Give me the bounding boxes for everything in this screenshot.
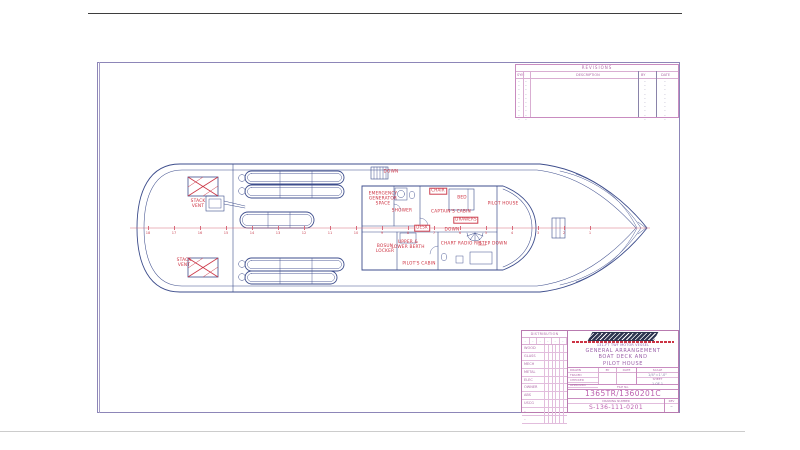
rev-cell: REV –	[665, 399, 678, 412]
frame-number-8: 8	[407, 231, 409, 235]
label-down-aft-stair: DOWN	[384, 171, 399, 176]
distribution-row-label: WOOD	[522, 345, 544, 352]
distribution-row: OWNER	[522, 384, 567, 392]
plan-label-layer: DOWNEMERGENCY GENERATOR SPACESHOWERCHAIR…	[0, 0, 800, 450]
drawing-number-value: S-136-111-0201	[568, 404, 664, 412]
distribution-row-label: –	[522, 408, 544, 415]
revisions-empty-rows: ––––––––––––––––––––––––––––––––––––––––	[516, 79, 678, 121]
distribution-title: DISTRIBUTION	[522, 331, 567, 338]
frame-tick	[200, 226, 201, 230]
distribution-symbol-row: ––––––	[522, 338, 567, 345]
frame-number-5: 5	[485, 231, 487, 235]
frame-tick	[590, 226, 591, 230]
distribution-cell	[563, 361, 567, 368]
distribution-cell	[563, 416, 567, 423]
frame-tick	[304, 226, 305, 230]
frame-tick	[486, 226, 487, 230]
distribution-row: USCG	[522, 400, 567, 408]
distribution-cell	[563, 353, 567, 360]
frame-tick	[226, 226, 227, 230]
scanned-drawing-sheet: DOWNEMERGENCY GENERATOR SPACESHOWERCHAIR…	[0, 0, 800, 450]
frame-number-13: 13	[276, 231, 281, 235]
file-number-value: 1365TR/1360201C	[568, 389, 678, 399]
revisions-row-dash: –	[525, 117, 527, 121]
frame-number-14: 14	[250, 231, 255, 235]
distribution-row-label: GLASS	[522, 353, 544, 360]
distribution-cell	[563, 392, 567, 399]
label-drawers: DRAWERS	[453, 217, 478, 224]
label-down-spiral-stair: DOWN	[445, 229, 460, 234]
revisions-col-date: DATE	[661, 72, 670, 78]
label-pilot-house: PILOT HOUSE	[488, 203, 519, 208]
distribution-row: METAL	[522, 369, 567, 377]
frame-number-15: 15	[224, 231, 229, 235]
frame-tick	[330, 226, 331, 230]
distribution-row: ABS	[522, 392, 567, 400]
builder-logo	[568, 331, 678, 341]
label-bed: BED	[457, 197, 467, 202]
frame-tick	[278, 226, 279, 230]
frame-number-7: 7	[433, 231, 435, 235]
distribution-row-label: USCG	[522, 400, 544, 407]
revisions-header-row: SYM DESCRIPTION BY DATE	[516, 72, 678, 79]
distribution-row: MECH	[522, 361, 567, 369]
title-block: DISTRIBUTION –––––– WOODGLASSMECHMETALEL…	[521, 330, 679, 413]
label-pilots-cabin: PILOT'S CABIN	[402, 263, 435, 268]
frame-number-17: 17	[172, 231, 177, 235]
revisions-col-description: DESCRIPTION	[576, 72, 600, 78]
frame-number-10: 10	[354, 231, 359, 235]
frame-number-3: 3	[537, 231, 539, 235]
revisions-row-dash: –	[518, 117, 520, 121]
distribution-row-label: ELEC	[522, 377, 544, 384]
distribution-row-label: METAL	[522, 369, 544, 376]
frame-tick	[252, 226, 253, 230]
frame-tick	[564, 226, 565, 230]
frame-tick	[174, 226, 175, 230]
distribution-row: –	[522, 408, 567, 416]
frame-number-9: 9	[381, 231, 383, 235]
distribution-row: –	[522, 416, 567, 424]
frame-number-2: 2	[563, 231, 565, 235]
label-step-down: STEP DOWN	[479, 243, 507, 248]
label-emergency-generator-space: EMERGENCY GENERATOR SPACE	[369, 193, 398, 208]
label-upper-lower-berth: UPPER & LOWER BERTH	[391, 241, 424, 251]
label-shower: SHOWER	[392, 210, 413, 215]
frame-tick	[408, 226, 409, 230]
drawing-number-box: DRAWING NUMBER S-136-111-0201	[568, 399, 665, 412]
distribution-cell	[563, 408, 567, 415]
frame-number-12: 12	[302, 231, 307, 235]
distribution-row-label: MECH	[522, 361, 544, 368]
frame-number-11: 11	[328, 231, 333, 235]
frame-number-4: 4	[511, 231, 513, 235]
distribution-row: ELEC	[522, 377, 567, 385]
distribution-row: WOOD	[522, 345, 567, 353]
revisions-row-dash: –	[644, 117, 646, 121]
distribution-row-label: ABS	[522, 392, 544, 399]
distribution-cell	[563, 369, 567, 376]
label-chair: CHAIR	[429, 188, 447, 195]
revisions-table: REVISIONS SYM DESCRIPTION BY DATE ––––––…	[515, 64, 679, 118]
frame-number-18: 18	[146, 231, 151, 235]
revisions-row: ––––	[516, 117, 678, 121]
frame-tick	[382, 226, 383, 230]
rev-value: –	[665, 404, 678, 411]
revisions-col-by: BY	[641, 72, 645, 78]
distribution-row-label: OWNER	[522, 384, 544, 391]
distribution-row-label: –	[522, 416, 544, 423]
revisions-row-dash: –	[664, 117, 666, 121]
revisions-title: REVISIONS	[516, 65, 678, 72]
distribution-cell	[563, 400, 567, 407]
frame-tick	[460, 226, 461, 230]
title-block-right: 131-FT TWF MOTOR VESSEL GENERAL ARRANGEM…	[568, 331, 678, 412]
frame-tick	[512, 226, 513, 230]
frame-number-6: 6	[459, 231, 461, 235]
approval-grid: DRAWNTRACEDCHECKEDAPPROVED BY DATE SCALE…	[568, 367, 678, 385]
distribution-table: DISTRIBUTION –––––– WOODGLASSMECHMETALEL…	[522, 331, 568, 412]
frame-number-1: 1	[589, 231, 591, 235]
label-stack-vent-aft-lower: STACK VENT	[177, 259, 192, 269]
label-captains-cabin: CAPTAIN'S CABIN	[431, 211, 471, 216]
label-desk: DESK	[414, 225, 430, 232]
distribution-cell	[563, 384, 567, 391]
label-stack-vent-aft-upper: STACK VENT	[191, 200, 206, 210]
frame-tick	[356, 226, 357, 230]
frame-tick	[434, 226, 435, 230]
distribution-cell	[563, 377, 567, 384]
frame-number-16: 16	[198, 231, 203, 235]
label-chart-radio-rm: CHART RADIO RM	[441, 243, 481, 248]
distribution-row: GLASS	[522, 353, 567, 361]
frame-tick	[148, 226, 149, 230]
distribution-cell	[563, 345, 567, 352]
frame-tick	[538, 226, 539, 230]
